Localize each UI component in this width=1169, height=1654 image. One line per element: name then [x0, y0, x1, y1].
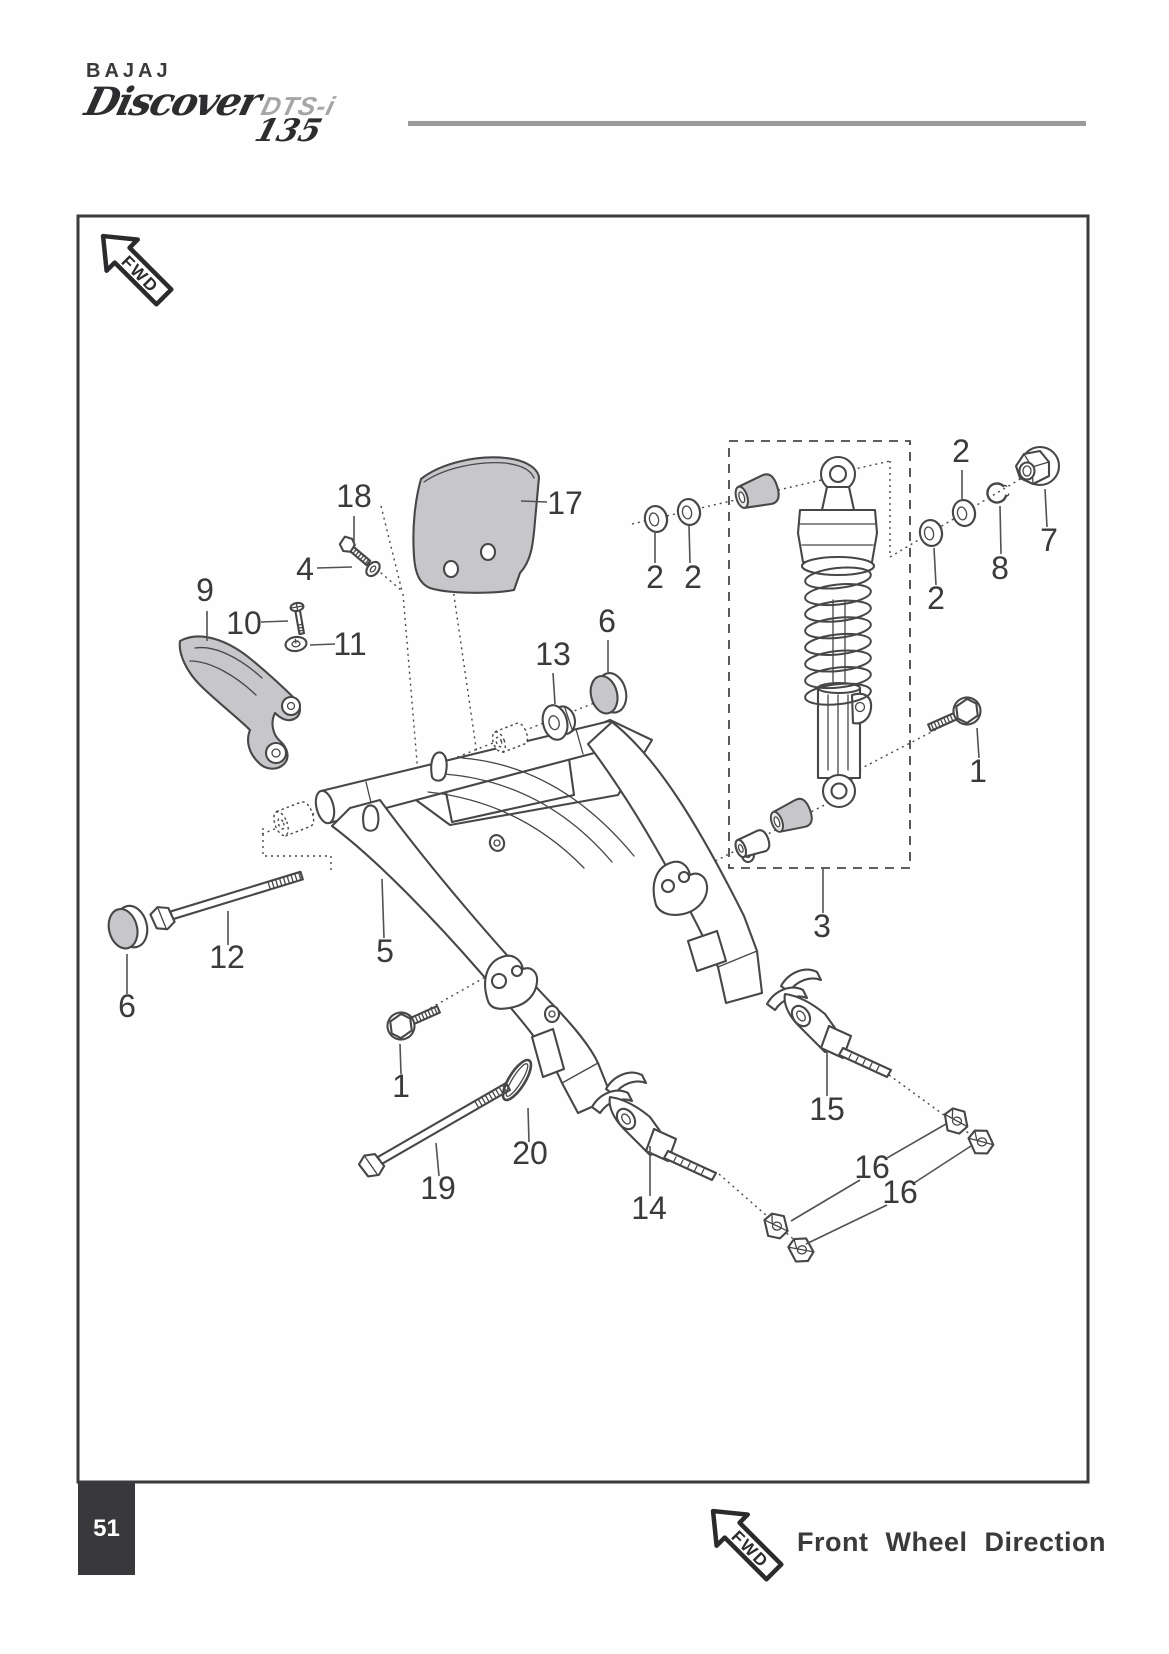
callout-leader-5 [382, 879, 384, 938]
shock-washer [918, 518, 945, 548]
adjuster-nut [787, 1236, 815, 1264]
page-number: 51 [93, 1515, 120, 1543]
axle-bolt [356, 1076, 513, 1181]
part-number-2: 2 [927, 580, 945, 616]
part-number-2: 2 [952, 433, 970, 469]
shock-washer [951, 498, 978, 528]
part-number-1: 1 [969, 753, 987, 789]
part-number-18: 18 [336, 478, 372, 514]
chain-adjuster [767, 970, 891, 1077]
swing-arm [313, 720, 762, 1113]
circlip [985, 481, 1010, 505]
mount-bolt [924, 693, 985, 740]
callout-leader-13 [553, 673, 555, 704]
part-number-16: 16 [882, 1174, 918, 1210]
callout-leader-4 [317, 567, 352, 568]
adjuster-nut [942, 1107, 969, 1134]
chain-slider [180, 636, 300, 768]
part-number-8: 8 [991, 550, 1009, 586]
pivot-cap [587, 670, 631, 717]
shock-bushing [732, 472, 781, 513]
exploded-parts-diagram: FWD FWD 18174910111362222871351261192014… [0, 0, 1169, 1654]
chain-adjuster [592, 1073, 716, 1180]
callout-leader-16 [806, 1205, 887, 1244]
part-callouts: 18174910111362222871351261192014151616 [118, 433, 1058, 1244]
slider-washer [285, 636, 308, 653]
o-ring [498, 1056, 536, 1103]
shock-washer [643, 504, 670, 534]
front-wheel-direction-caption: Front Wheel Direction [797, 1527, 1106, 1558]
part-number-6: 6 [118, 988, 136, 1024]
part-number-14: 14 [631, 1190, 667, 1226]
part-number-15: 15 [809, 1091, 845, 1127]
rear-shock-absorber [798, 457, 877, 807]
part-number-13: 13 [535, 636, 571, 672]
adjuster-nut [968, 1129, 994, 1155]
part-number-1: 1 [392, 1068, 410, 1104]
fwd-arrow-icon: FWD [88, 221, 180, 313]
chain-guard-plate [413, 457, 539, 592]
fwd-arrow-icon: FWD [698, 1496, 790, 1588]
part-number-2: 2 [684, 559, 702, 595]
diagram-frame [78, 216, 1088, 1482]
part-number-4: 4 [296, 551, 314, 587]
part-number-9: 9 [196, 572, 214, 608]
mount-bolt [383, 997, 444, 1044]
guard-bolt [337, 534, 373, 568]
part-number-11: 11 [333, 626, 366, 662]
shock-washer [676, 497, 703, 527]
part-number-12: 12 [209, 939, 245, 975]
adjuster-nut [763, 1213, 789, 1239]
part-number-6: 6 [598, 603, 616, 639]
cap-nut [1016, 447, 1059, 485]
part-number-19: 19 [420, 1170, 456, 1206]
callout-leader-17 [521, 501, 547, 502]
part-number-17: 17 [547, 485, 583, 521]
pivot-spacer-hidden [271, 800, 317, 838]
callout-leader-16 [914, 1146, 971, 1183]
part-number-7: 7 [1040, 522, 1058, 558]
shock-spacer [733, 828, 772, 860]
parts-catalog-page: BAJAJ DiscoverDTS-i 135 [0, 0, 1169, 1654]
callout-leader-16 [887, 1124, 946, 1158]
page-number-badge: 51 [78, 1483, 135, 1575]
slider-screw [290, 602, 308, 635]
callout-leader-10 [261, 621, 288, 622]
pivot-cap [104, 903, 151, 953]
part-number-5: 5 [376, 933, 394, 969]
pivot-bolt [149, 864, 305, 933]
callout-leader-16 [791, 1180, 860, 1221]
part-number-20: 20 [512, 1135, 548, 1171]
callout-leader-8 [1000, 506, 1001, 554]
callout-leader-11 [310, 644, 335, 645]
part-number-10: 10 [226, 605, 262, 641]
callout-leader-2 [689, 526, 690, 563]
part-number-3: 3 [813, 908, 831, 944]
part-number-2: 2 [646, 559, 664, 595]
